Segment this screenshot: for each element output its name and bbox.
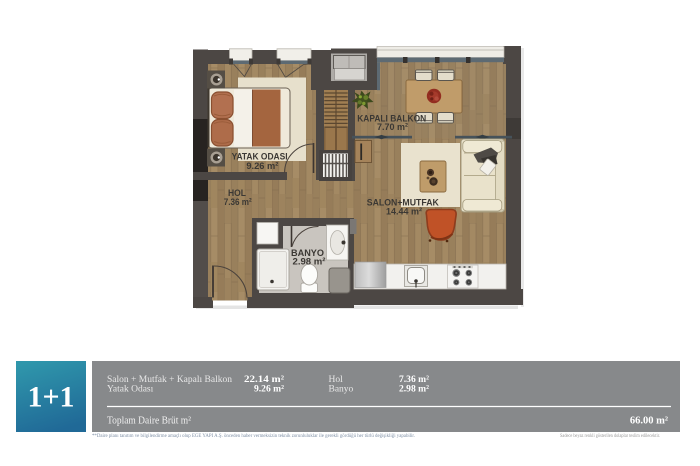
svg-text:7.70 m²: 7.70 m² [377,122,408,132]
svg-text:9.26 m²: 9.26 m² [246,161,278,171]
svg-text:2.98 m²: 2.98 m² [399,385,429,395]
svg-text:Hol: Hol [329,375,344,385]
svg-text:1+1: 1+1 [27,381,74,414]
svg-text:Yatak Odası: Yatak Odası [107,385,154,395]
svg-text:7.36 m²: 7.36 m² [224,197,252,207]
svg-text:2.98 m²: 2.98 m² [293,256,326,266]
svg-text:9.26 m²: 9.26 m² [254,385,284,395]
svg-text:Banyo: Banyo [329,385,354,395]
svg-text:7.36 m²: 7.36 m² [399,375,429,385]
svg-text:14.44 m²: 14.44 m² [386,207,422,217]
svg-text:22.14 m²: 22.14 m² [244,375,284,385]
svg-text:Salon + Mutfak + Kapalı Balkon: Salon + Mutfak + Kapalı Balkon [107,374,232,385]
svg-text:YATAK ODASI: YATAK ODASI [232,151,288,161]
svg-text:**Daire planı tanıtım ve bilgi: **Daire planı tanıtım ve bilgilendirme a… [92,434,415,439]
svg-text:Toplam Daire Brüt m²: Toplam Daire Brüt m² [107,416,191,427]
svg-text:Sadece beyaz renkli gösterilen: Sadece beyaz renkli gösterilen dolaplar … [560,434,660,439]
svg-text:66.00 m²: 66.00 m² [630,416,668,427]
